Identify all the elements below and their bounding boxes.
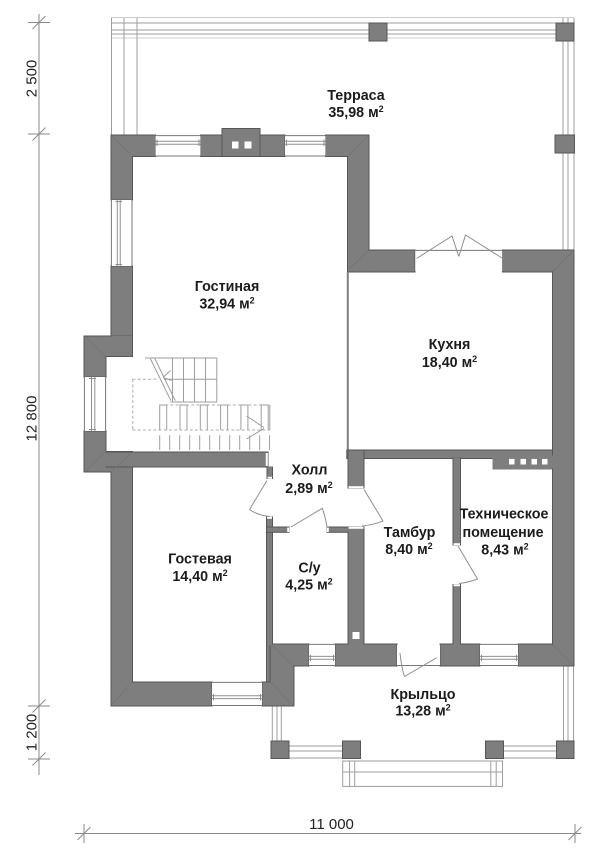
svg-text:8,43 м2: 8,43 м2 bbox=[481, 542, 528, 559]
svg-text:14,40 м2: 14,40 м2 bbox=[172, 568, 227, 585]
svg-text:2,89 м2: 2,89 м2 bbox=[285, 480, 332, 497]
svg-text:32,94 м2: 32,94 м2 bbox=[199, 296, 254, 313]
svg-text:Крыльцо: Крыльцо bbox=[390, 687, 455, 703]
svg-text:2 500: 2 500 bbox=[24, 60, 41, 98]
svg-text:Гостевая: Гостевая bbox=[168, 552, 232, 568]
svg-text:18,40 м2: 18,40 м2 bbox=[422, 354, 477, 371]
svg-text:Гостиная: Гостиная bbox=[195, 279, 260, 295]
svg-text:11 000: 11 000 bbox=[309, 816, 354, 833]
svg-text:13,28 м2: 13,28 м2 bbox=[395, 703, 450, 720]
svg-text:4,25 м2: 4,25 м2 bbox=[285, 577, 332, 594]
svg-text:Терраса: Терраса bbox=[327, 88, 386, 104]
svg-text:35,98 м2: 35,98 м2 bbox=[328, 104, 383, 121]
svg-text:Холл: Холл bbox=[292, 463, 328, 479]
svg-text:Техническое: Техническое bbox=[460, 507, 549, 523]
svg-text:12 800: 12 800 bbox=[24, 396, 41, 442]
svg-text:8,40 м2: 8,40 м2 bbox=[385, 541, 432, 558]
svg-text:С/у: С/у bbox=[298, 561, 320, 577]
svg-text:помещение: помещение bbox=[462, 525, 543, 541]
svg-text:Тамбур: Тамбур bbox=[384, 525, 436, 541]
svg-text:Кухня: Кухня bbox=[429, 337, 471, 353]
svg-text:1 200: 1 200 bbox=[24, 714, 41, 752]
